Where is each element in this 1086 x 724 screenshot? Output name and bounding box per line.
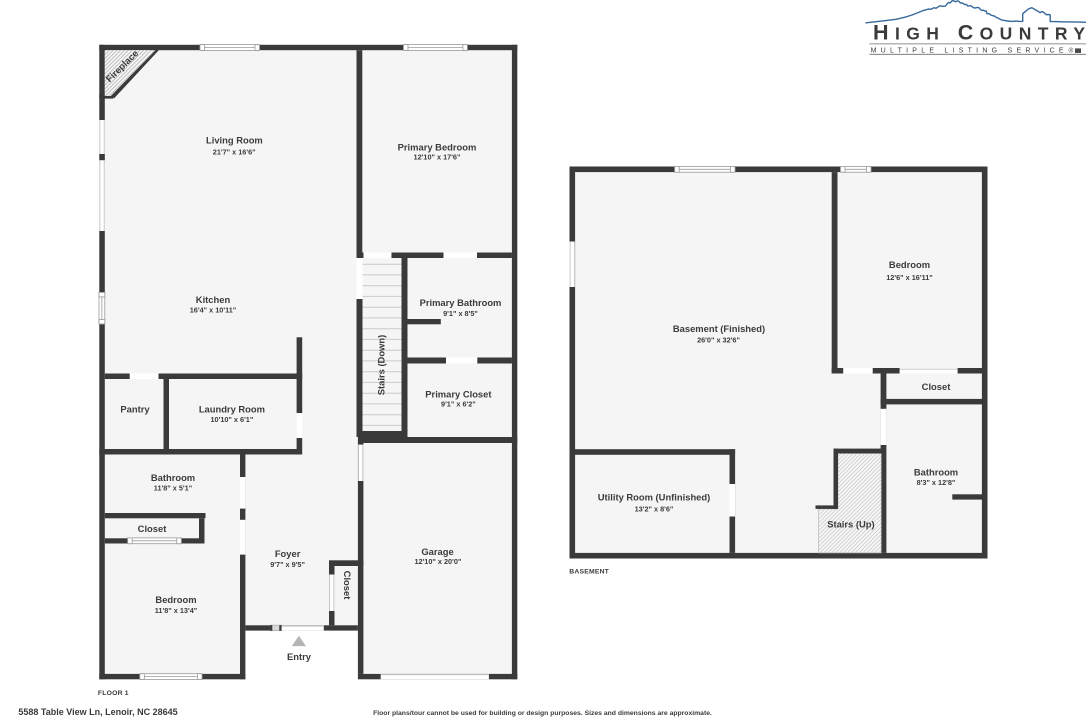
svg-text:5588 Table View Ln, Lenoir, NC: 5588 Table View Ln, Lenoir, NC 28645 [18,707,177,717]
svg-text:16'4" x 10'11": 16'4" x 10'11" [190,305,237,314]
svg-text:Living Room: Living Room [206,135,263,146]
svg-text:Bedroom: Bedroom [155,594,196,605]
svg-text:12'10" x 20'0": 12'10" x 20'0" [414,557,461,566]
svg-text:Floor plans/tour cannot be use: Floor plans/tour cannot be used for buil… [373,710,712,717]
svg-text:9'7" x 9'5": 9'7" x 9'5" [270,560,305,569]
svg-text:BASEMENT: BASEMENT [569,569,609,576]
svg-text:Pantry: Pantry [120,403,150,414]
svg-text:MULTIPLE LISTING SERVICE: MULTIPLE LISTING SERVICE [871,47,1064,54]
svg-text:Bedroom: Bedroom [889,259,930,270]
svg-text:9'1" x 8'5": 9'1" x 8'5" [443,309,478,318]
svg-text:Closet: Closet [922,381,951,392]
svg-text:12'10" x 17'6": 12'10" x 17'6" [414,153,461,162]
svg-text:Foyer: Foyer [275,548,301,559]
svg-text:Closet: Closet [138,523,167,534]
svg-text:Primary Bedroom: Primary Bedroom [398,141,477,152]
svg-text:13'2" x 8'6": 13'2" x 8'6" [635,504,674,513]
svg-text:®: ® [1069,47,1074,55]
svg-text:21'7" x 16'6": 21'7" x 16'6" [213,147,256,156]
svg-text:Bathroom: Bathroom [151,472,195,483]
svg-text:Basement (Finished): Basement (Finished) [673,323,765,334]
svg-text:FLOOR 1: FLOOR 1 [98,690,129,697]
svg-text:8'3" x 12'8": 8'3" x 12'8" [917,478,956,487]
svg-text:26'0" x 32'6": 26'0" x 32'6" [697,335,740,344]
svg-text:Kitchen: Kitchen [196,294,231,305]
svg-text:12'6" x 16'11": 12'6" x 16'11" [886,273,933,282]
svg-text:Laundry Room: Laundry Room [199,403,265,414]
svg-text:Primary Closet: Primary Closet [425,388,491,399]
svg-text:Closet: Closet [342,571,353,600]
svg-text:9'1" x 6'2": 9'1" x 6'2" [441,400,476,409]
svg-text:Garage: Garage [421,546,453,557]
svg-text:Bathroom: Bathroom [914,466,958,477]
svg-text:Utility Room (Unfinished): Utility Room (Unfinished) [598,491,711,502]
svg-text:11'8" x 13'4": 11'8" x 13'4" [155,606,197,615]
svg-text:Stairs (Up): Stairs (Up) [827,519,874,530]
svg-text:10'10" x 6'1": 10'10" x 6'1" [210,415,253,424]
svg-text:11'8" x 5'1": 11'8" x 5'1" [154,484,192,493]
svg-text:Entry: Entry [287,651,312,662]
svg-text:Primary Bathroom: Primary Bathroom [420,297,502,308]
svg-text:Stairs (Down): Stairs (Down) [375,335,386,395]
